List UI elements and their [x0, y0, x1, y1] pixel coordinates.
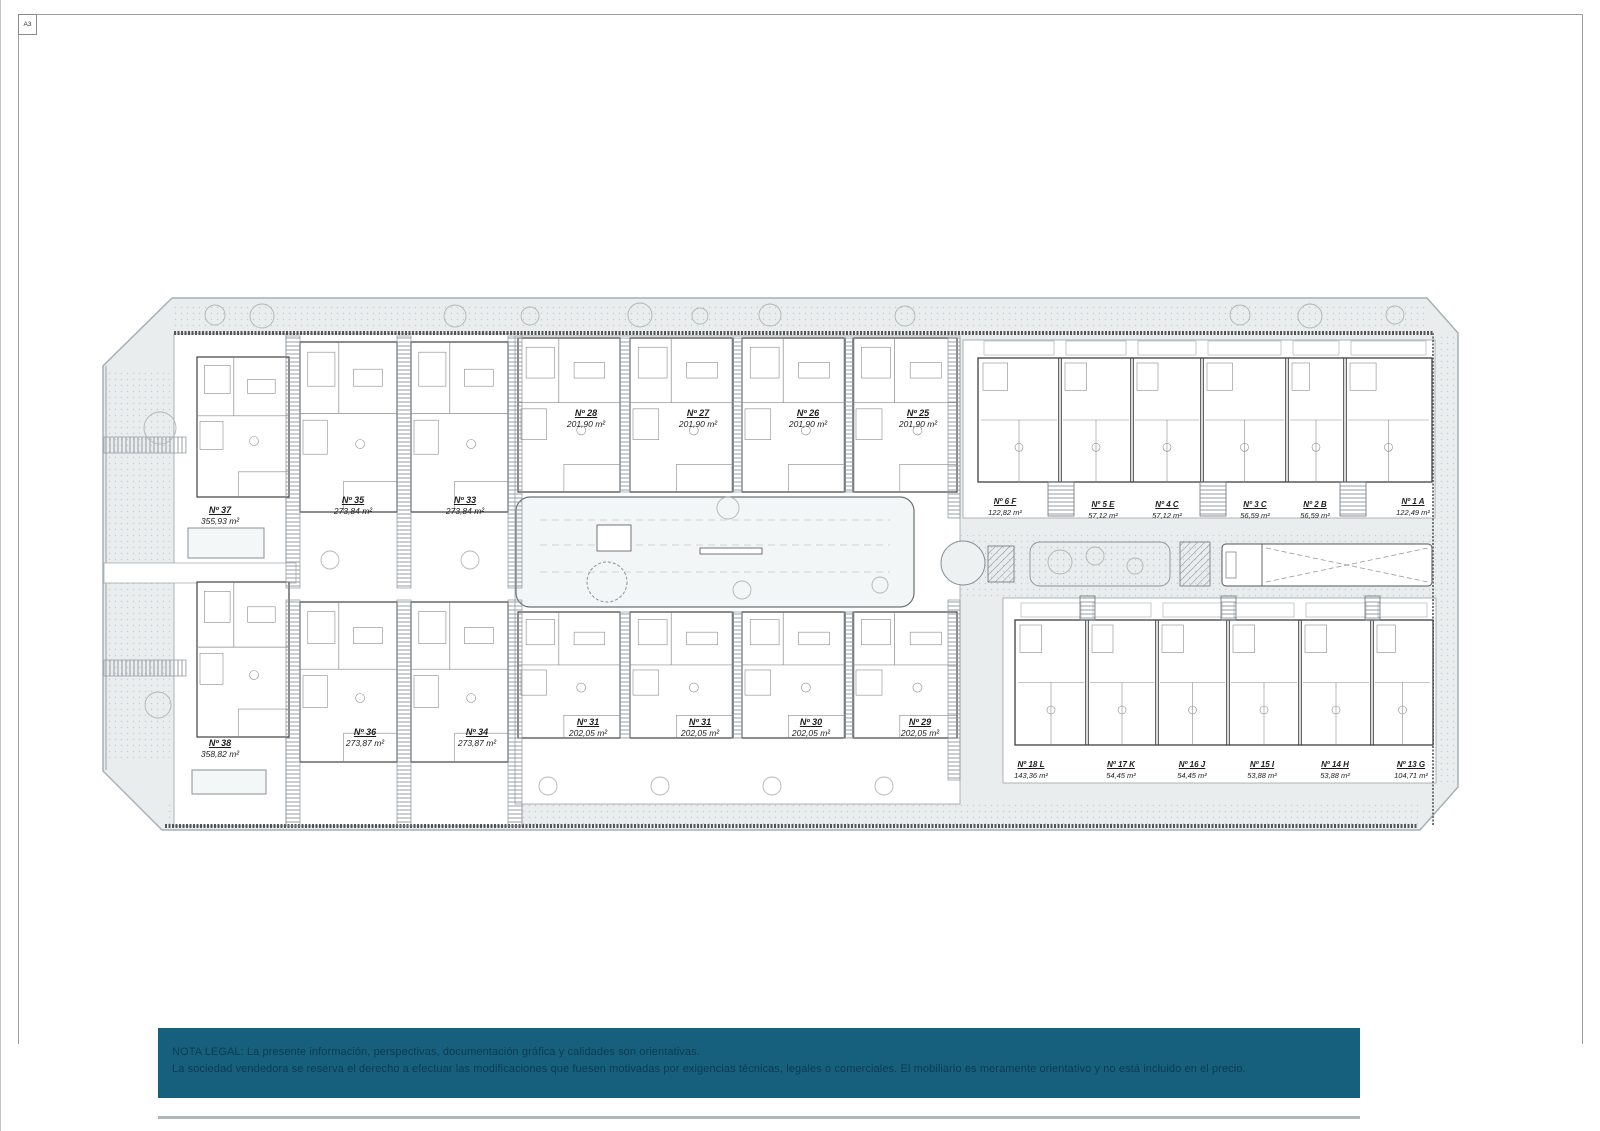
unit-area: 54,45 m²	[1106, 771, 1136, 782]
site-plan-drawing	[0, 0, 1600, 1131]
unit-number: Nº 3 C	[1243, 500, 1266, 511]
unit-label: Nº 25201,90 m²	[899, 408, 937, 429]
unit-label: Nº 31202,05 m²	[681, 717, 719, 738]
unit-area: 201,90 m²	[789, 419, 827, 430]
plan-sheet: A3	[0, 0, 1600, 1131]
unit-label: Nº 38358,82 m²	[201, 738, 239, 759]
unit-label: Nº 29202,05 m²	[901, 717, 939, 738]
legal-note-line1: NOTA LEGAL: La presente información, per…	[172, 1044, 1360, 1061]
turning-circle	[941, 541, 985, 585]
unit-number: Nº 34	[466, 727, 488, 738]
unit-label: Nº 37355,93 m²	[201, 505, 239, 526]
vehicle	[1222, 544, 1432, 586]
unit-label: Nº 28201,90 m²	[567, 408, 605, 429]
central-path	[104, 563, 296, 583]
unit-number: Nº 35	[342, 495, 364, 506]
unit-label: Nº 18 L143,36 m²	[1014, 760, 1048, 781]
unit-area: 202,05 m²	[901, 728, 939, 739]
unit-number: Nº 2 B	[1303, 500, 1326, 511]
unit-area: 202,05 m²	[681, 728, 719, 739]
unit-number: Nº 38	[209, 738, 231, 749]
unit-label: Nº 15 I53,88 m²	[1247, 760, 1277, 781]
unit-label: Nº 4 C57,12 m²	[1152, 500, 1182, 521]
unit-number: Nº 31	[577, 717, 599, 728]
unit-area: 273,87 m²	[458, 738, 496, 749]
unit-label: Nº 5 E57,12 m²	[1088, 500, 1118, 521]
unit-area: 54,45 m²	[1177, 771, 1207, 782]
unit-number: Nº 36	[354, 727, 376, 738]
unit-number: Nº 26	[797, 408, 819, 419]
unit-number: Nº 25	[907, 408, 929, 419]
unit-area: 53,88 m²	[1247, 771, 1277, 782]
unit-number: Nº 17 K	[1107, 760, 1135, 771]
legal-note-line2: La sociedad vendedora se reserva el dere…	[172, 1061, 1360, 1078]
unit-area: 53,88 m²	[1320, 771, 1350, 782]
unit-label: Nº 31202,05 m²	[569, 717, 607, 738]
unit-label: Nº 34273,87 m²	[458, 727, 496, 748]
unit-area: 201,90 m²	[899, 419, 937, 430]
unit-number: Nº 31	[689, 717, 711, 728]
unit-area: 201,90 m²	[679, 419, 717, 430]
unit-label: Nº 35273,84 m²	[334, 495, 372, 516]
unit-label: Nº 27201,90 m²	[679, 408, 717, 429]
unit-area: 273,84 m²	[446, 506, 484, 517]
unit-label: Nº 1 A122,49 m²	[1396, 497, 1430, 518]
unit-area: 122,49 m²	[1396, 508, 1430, 519]
unit-area: 56,59 m²	[1300, 511, 1330, 522]
unit-area: 355,93 m²	[201, 516, 239, 527]
unit-area: 273,84 m²	[334, 506, 372, 517]
unit-number: Nº 28	[575, 408, 597, 419]
unit-area: 201,90 m²	[567, 419, 605, 430]
unit-number: Nº 30	[800, 717, 822, 728]
unit-area: 104,71 m²	[1394, 771, 1428, 782]
pool	[188, 528, 264, 558]
unit-label: Nº 30202,05 m²	[792, 717, 830, 738]
unit-number: Nº 6 F	[994, 497, 1016, 508]
unit-label: Nº 14 H53,88 m²	[1320, 760, 1350, 781]
unit-number: Nº 37	[209, 505, 231, 516]
unit-area: 202,05 m²	[792, 728, 830, 739]
unit-area: 202,05 m²	[569, 728, 607, 739]
unit-label: Nº 13 G104,71 m²	[1394, 760, 1428, 781]
unit-number: Nº 1 A	[1401, 497, 1424, 508]
unit-number: Nº 5 E	[1092, 500, 1115, 511]
unit-number: Nº 13 G	[1397, 760, 1425, 771]
entrance-stairs	[104, 660, 186, 676]
unit-label: Nº 16 J54,45 m²	[1177, 760, 1207, 781]
unit-number: Nº 27	[687, 408, 709, 419]
unit-area: 358,82 m²	[201, 749, 239, 760]
communal-courtyard	[516, 497, 914, 607]
unit-label: Nº 33273,84 m²	[446, 495, 484, 516]
unit-number: Nº 33	[454, 495, 476, 506]
footer-rule	[158, 1116, 1360, 1119]
unit-number: Nº 15 I	[1250, 760, 1274, 771]
pool	[192, 770, 266, 794]
unit-label: Nº 36273,87 m²	[346, 727, 384, 748]
unit-area: 122,82 m²	[988, 508, 1022, 519]
unit-label: Nº 6 F122,82 m²	[988, 497, 1022, 518]
unit-area: 56,59 m²	[1240, 511, 1270, 522]
unit-number: Nº 18 L	[1018, 760, 1045, 771]
entrance-stairs	[104, 437, 186, 453]
unit-label: Nº 26201,90 m²	[789, 408, 827, 429]
unit-area: 57,12 m²	[1152, 511, 1182, 522]
unit-number: Nº 14 H	[1321, 760, 1349, 771]
site-plan: Nº 37355,93 m² Nº 35273,84 m² Nº 33273,8…	[0, 0, 1600, 1131]
unit-label: Nº 2 B56,59 m²	[1300, 500, 1330, 521]
unit-number: Nº 29	[909, 717, 931, 728]
unit-label: Nº 3 C56,59 m²	[1240, 500, 1270, 521]
unit-area: 57,12 m²	[1088, 511, 1118, 522]
unit-number: Nº 4 C	[1155, 500, 1178, 511]
legal-note-banner: NOTA LEGAL: La presente información, per…	[158, 1028, 1360, 1098]
unit-area: 273,87 m²	[346, 738, 384, 749]
unit-number: Nº 16 J	[1179, 760, 1206, 771]
unit-label: Nº 17 K54,45 m²	[1106, 760, 1136, 781]
unit-area: 143,36 m²	[1014, 771, 1048, 782]
